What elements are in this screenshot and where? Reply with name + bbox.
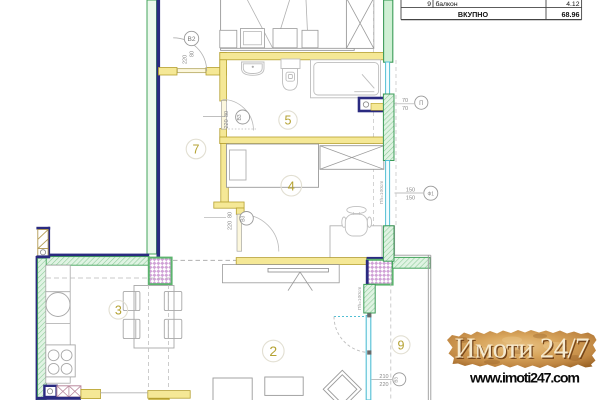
svg-text:80: 80 [224,111,230,117]
svg-text:В2: В2 [188,36,196,43]
svg-text:220: 220 [224,119,230,128]
svg-text:220: 220 [228,221,234,230]
svg-text:5: 5 [285,114,292,128]
svg-text:Пh=100cm: Пh=100cm [379,181,385,204]
svg-text:3: 3 [115,303,122,317]
svg-text:ВЗ: ВЗ [241,216,247,222]
svg-text:2: 2 [269,343,277,359]
svg-text:150: 150 [406,195,415,201]
svg-text:7: 7 [193,143,200,157]
svg-text:Имоти 24/7: Имоти 24/7 [455,333,590,365]
svg-text:80: 80 [190,51,196,57]
svg-text:9: 9 [427,1,431,8]
svg-text:70: 70 [402,98,408,104]
svg-text:ВЗ: ВЗ [237,114,243,120]
svg-text:4: 4 [288,179,295,194]
svg-text:П: П [419,101,423,107]
svg-text:70: 70 [402,106,408,112]
svg-text:68.96: 68.96 [562,10,580,19]
svg-text:4.12: 4.12 [566,1,579,8]
svg-text:балкон: балкон [436,0,458,8]
svg-text:www.imoti247.com: www.imoti247.com [469,371,580,387]
svg-text:220: 220 [183,55,189,64]
svg-text:210: 210 [379,374,388,380]
svg-text:Пh=100cm: Пh=100cm [357,287,363,310]
svg-text:150: 150 [406,188,415,194]
svg-text:220: 220 [379,382,388,388]
svg-text:9: 9 [398,338,405,352]
svg-text:80: 80 [228,212,234,218]
svg-text:ВКУПНО: ВКУПНО [458,10,489,19]
svg-text:Ф1: Ф1 [428,192,435,198]
svg-text:ВЗ: ВЗ [393,377,398,383]
